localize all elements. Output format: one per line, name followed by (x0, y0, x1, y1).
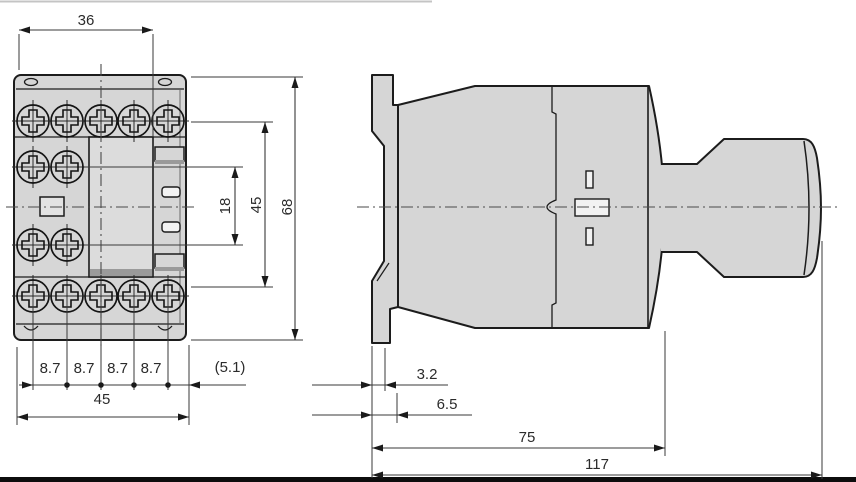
drawing-canvas: 36 18 45 68 8.7 8.7 (0, 0, 856, 482)
coil-slot-lower (586, 228, 593, 245)
bottom-border-line (0, 477, 856, 482)
vent-slot-lower (162, 222, 180, 232)
aux-slot-bottom (155, 254, 184, 268)
aux-slot-top-shadow (155, 160, 184, 164)
dim-label-pitch-1: 8.7 (40, 360, 61, 377)
vent-slot-upper (162, 187, 180, 197)
dim-label-pitch-4: 8.7 (141, 360, 162, 377)
dim-label-width-bottom: 45 (94, 391, 111, 408)
dim-label-height-contact: 18 (217, 198, 234, 215)
dim-label-clip-depth: 3.2 (417, 366, 438, 383)
dim-label-pitch-3: 8.7 (107, 360, 128, 377)
aux-slot-bottom-shadow (155, 267, 184, 271)
dim-label-body-depth: 75 (519, 429, 536, 446)
side-front-attachment (661, 139, 821, 277)
coil-slot-upper (586, 171, 593, 188)
side-view (357, 75, 840, 343)
dim-label-width-top: 36 (78, 12, 95, 29)
dimension-drawing: 36 18 45 68 8.7 8.7 (0, 0, 856, 482)
dim-label-height-mount: 45 (248, 197, 265, 214)
contact-carrier-shadow (90, 269, 152, 276)
dim-label-pitch-2: 8.7 (74, 360, 95, 377)
din-rail-flange (372, 75, 398, 343)
dim-label-flange-depth: 6.5 (437, 396, 458, 413)
aux-slot-top (155, 147, 184, 161)
dim-label-total-depth: 117 (585, 456, 609, 473)
dim-label-margin-right: (5.1) (215, 359, 246, 376)
dim-label-height-total: 68 (279, 199, 296, 216)
